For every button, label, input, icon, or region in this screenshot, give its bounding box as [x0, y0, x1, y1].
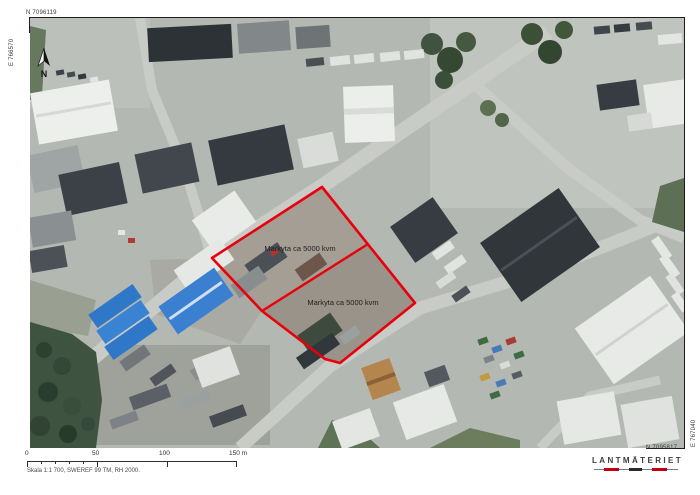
scale-tick [83, 461, 84, 464]
scale-tick [236, 461, 237, 467]
scale-tick [69, 461, 70, 464]
scale-tick [41, 461, 42, 464]
logo-bar-segment [642, 469, 652, 470]
north-arrow-right-half [44, 48, 50, 66]
aerial-photo: Markyta ca 5000 kvm Markyta ca 5000 kvm [30, 18, 684, 448]
scale-label-0: 0 [25, 450, 29, 457]
parcel-area-label: Markyta ca 5000 kvm [307, 298, 378, 307]
logo-bar-segment [594, 469, 604, 470]
scale-tick [27, 461, 28, 467]
scale-label-50: 50 [92, 450, 99, 457]
coordinate-east-right: E 767040 [691, 420, 697, 447]
logo-wordmark: LANTMÄTERIET [592, 456, 683, 465]
logo-bar-segment [619, 469, 629, 470]
logo-measure-bar [594, 468, 678, 471]
coordinate-east-left: E 766570 [9, 39, 15, 66]
scale-tick [167, 461, 168, 467]
coordinate-north-top: N 7096119 [26, 10, 57, 16]
map-border-left-tick [29, 17, 30, 33]
map-border-right [684, 17, 685, 448]
parcel-area-label: Markyta ca 5000 kvm [264, 244, 335, 253]
scale-caption: Skala 1:1 700, SWEREF 99 TM, RH 2000. [27, 468, 140, 474]
north-arrow-left-half [38, 48, 44, 66]
logo-bar-segment-red [604, 468, 619, 471]
map-border-top [30, 17, 685, 18]
aerial-map: Markyta ca 5000 kvm Markyta ca 5000 kvm [30, 18, 684, 448]
north-arrow-label: N [41, 69, 48, 79]
scale-bar-line [27, 461, 237, 462]
scale-label-100: 100 [159, 450, 170, 457]
logo-bar-segment-dark [629, 468, 642, 471]
scale-tick [55, 461, 56, 464]
north-arrow: N [33, 46, 57, 82]
logo-bar-segment-red [652, 468, 667, 471]
scale-label-150m: 150 m [229, 450, 247, 457]
logo-bar-segment [667, 469, 678, 470]
coordinate-north-bottom: N 7095817 [646, 445, 677, 451]
scale-tick [97, 461, 98, 467]
